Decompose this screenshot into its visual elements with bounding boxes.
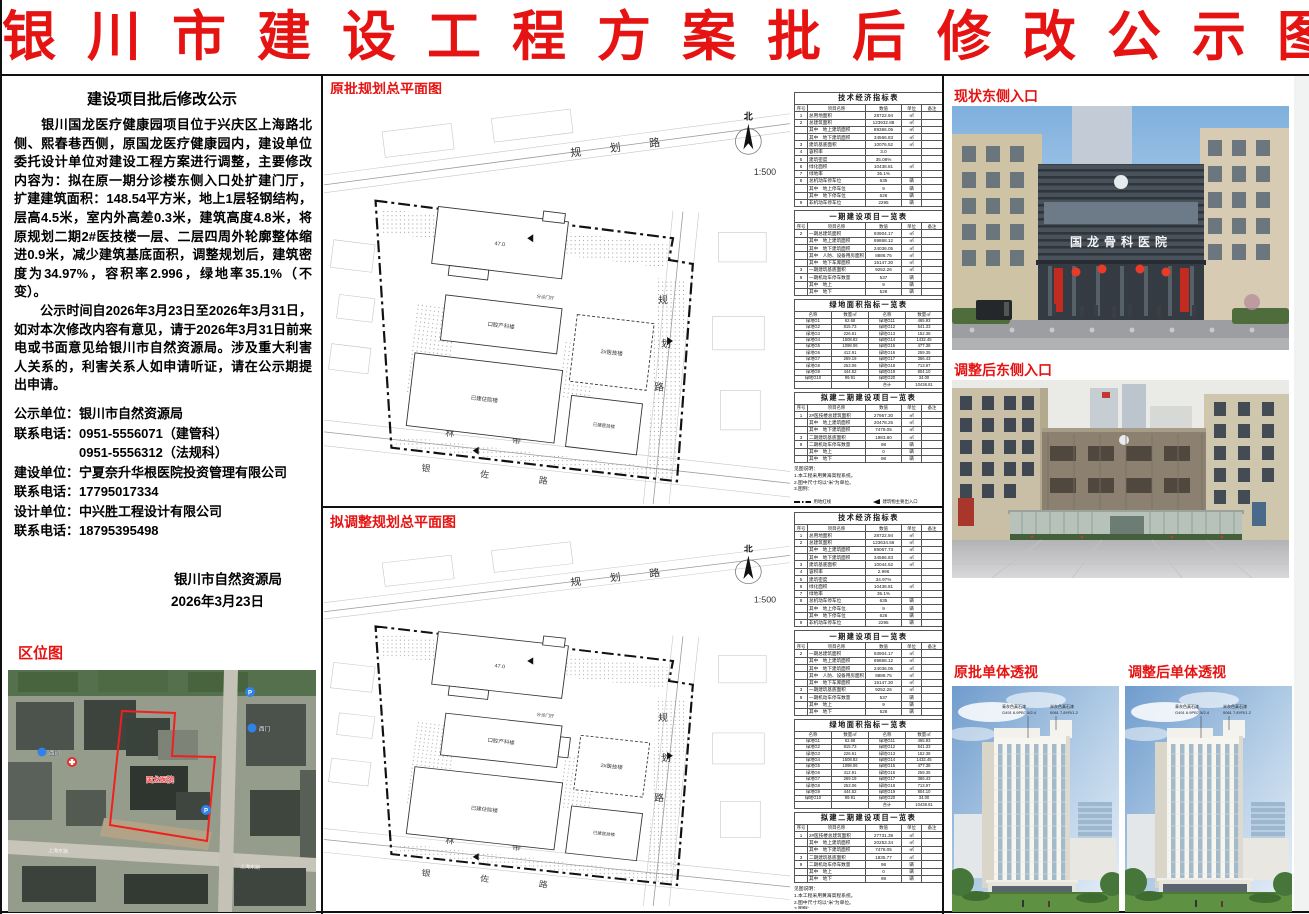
table-row: 其中 地下98辆	[795, 455, 943, 462]
table-row: 7绿地率35.1%	[795, 590, 943, 597]
table-row: 其中 地上停车位9辆	[795, 185, 943, 192]
svg-text:分诊门厅: 分诊门厅	[536, 711, 555, 720]
table-row: 其中 地下停车位626辆	[795, 192, 943, 199]
photo2-label: 调整后东侧入口	[954, 360, 1052, 380]
table-row: 其中 地下建筑面积34566.83㎡	[795, 134, 943, 141]
legend-label: 用地红线	[814, 499, 832, 504]
page-title: 银川市建设工程方案批后修改公示图	[2, 0, 1309, 74]
table-row: 其中 地下建筑面积7478.05㎡	[795, 846, 943, 853]
plan-notes: 见图说明：1.本工程采用黄海高程系统。2.图中尺寸均以“米”为单位。3.图例：	[794, 467, 942, 494]
adjusted-indicator-tables: 技术经济指标表 序号项目名称数值单位备注 1总用地面积28722.94㎡2总建筑…	[794, 512, 942, 909]
svg-text:1:500: 1:500	[754, 167, 776, 177]
tech-indicator-table: 技术经济指标表 序号项目名称数值单位备注 1总用地面积28722.94㎡2总建筑…	[794, 92, 942, 207]
note-line: 3.图例：	[794, 487, 942, 494]
table-row: 其中 地下528辆	[795, 708, 943, 715]
photo1-label: 现状东侧入口	[954, 86, 1038, 106]
paved-plaza	[952, 540, 1289, 578]
location-map-label: 区位图	[18, 642, 63, 663]
note-line: 1.本工程采用黄海高程系统。	[794, 894, 942, 901]
table-row: 其中 地上建筑面积69868.12㎡	[795, 657, 943, 664]
table-row: 其中 地上停车位9辆	[795, 605, 943, 612]
existing-entrance-photo: 国龙骨科医院	[952, 106, 1289, 350]
svg-text:1:500: 1:500	[754, 595, 777, 605]
legend-symbol-icon	[794, 501, 811, 503]
contact-list: 公示单位：银川市自然资源局联系电话：0951-5556071（建管科） 0951…	[14, 404, 316, 541]
table-row: 1总用地面积28722.94㎡	[795, 532, 943, 539]
location-satellite-map: P P 西门 西门 国龙医院 上海东路 上海东路	[8, 670, 316, 912]
table-row: 6绿化面积10438.81㎡	[795, 583, 943, 590]
table-row: 3一期建筑基底面积9252.26㎡	[795, 686, 943, 693]
contact-line: 联系电话：18795395498	[14, 521, 316, 541]
column-divider-right	[942, 74, 944, 914]
phase2-table: 拟建二期建设项目一览表 序号项目名称数值单位备注 12#医技楼总建筑面积2773…	[794, 812, 942, 883]
contact-line: 联系电话：17795017334	[14, 482, 316, 502]
legend-item: 建筑物主要出入口	[866, 498, 942, 504]
table-row: 其中 地下车库面积15147.30㎡	[795, 259, 943, 266]
table-row: 9一期机动车停车数量537辆	[795, 694, 943, 701]
contact-line: 设计单位：中兴胜工程设计有限公司	[14, 502, 316, 522]
road-label: 上海东路	[240, 863, 260, 871]
table-row: 8总机动车停车位635辆	[795, 177, 943, 184]
table-row: 其中 地上建筑面积89067.73㎡	[795, 546, 943, 553]
gate-pin-icon	[38, 748, 47, 757]
table-row: 12#医技楼总建筑面积27957.30㎡	[795, 412, 943, 419]
svg-text:青灰色真石漆: 青灰色真石漆	[1002, 703, 1026, 709]
table-row: 其中 地上建筑面积89366.05㎡	[795, 126, 943, 133]
table-row: 9二期机动车停车数量98辆	[795, 441, 943, 448]
note-line: 3.图例：	[794, 907, 942, 909]
svg-text:P: P	[248, 690, 252, 696]
adjusted-tower-render: 青灰色真石漆 G491 6.9PB7.5/2.4 米灰色真石漆 0061 7.8…	[1125, 686, 1292, 912]
table-row: 9一期机动车停车数量537辆	[795, 274, 943, 281]
svg-text:0061 7.8YR/1.2: 0061 7.8YR/1.2	[1050, 710, 1079, 715]
table-row: 2总建筑面积123634.56㎡	[795, 539, 943, 546]
green-area-table: 绿地面积指标一览表 名称数量㎡名称数量㎡ 绿地G162.68绿地G11465.9…	[794, 719, 942, 809]
svg-text:北: 北	[744, 543, 753, 554]
table-row: 5建筑密度34.97%	[795, 576, 943, 583]
buildings: 47.0 口腔产科楼 2#医技楼 已建住院楼 已建医技楼 分诊门厅	[406, 624, 664, 861]
table-row: 其中 地下建筑面积34566.83㎡	[795, 554, 943, 561]
north-arrow: 北 1:500	[735, 111, 776, 177]
adjusted-entrance-photo	[952, 380, 1289, 578]
contact-line: 0951-5556312（法规科）	[14, 443, 316, 463]
svg-text:米灰色真石漆: 米灰色真石漆	[1223, 703, 1247, 709]
legend-label: 建筑物主要出入口	[883, 499, 918, 504]
original-site-plan: 规 划 路 规 划 路 林 带 银 佐 路 北 1:500 47.0 口腔产科楼	[324, 94, 790, 504]
table-row: 12#医技楼总建筑面积27731.39㎡	[795, 832, 943, 839]
table-row: 7绿地率35.1%	[795, 170, 943, 177]
table-row: 其中 人防、设备用房面积8888.75㎡	[795, 672, 943, 679]
issuing-authority: 银川市自然资源局	[2, 568, 282, 588]
table-row: 4容积率3.0	[795, 148, 943, 155]
svg-text:G491 6.9PB7.5/2.4: G491 6.9PB7.5/2.4	[1002, 710, 1037, 715]
table-row: 其中 地上0辆	[795, 448, 943, 455]
site-name-label: 国龙医院	[146, 775, 174, 784]
notice-paragraph-2: 公示时间自2026年3月23日至2026年3月31日，如对本次修改内容有意见，请…	[14, 302, 312, 395]
title-divider	[2, 74, 1309, 76]
road-label-top: 规 划 路	[569, 133, 673, 159]
table-row: 其中 地下建筑面积24036.05㎡	[795, 245, 943, 252]
table-row: 6绿化面积10438.81㎡	[795, 163, 943, 170]
table-row: 其中 地下98辆	[795, 875, 943, 882]
render1-label: 原批单体透视	[954, 662, 1038, 682]
table-row: 3二期建筑基底面积1983.80㎡	[795, 434, 943, 441]
table-row: 其中 人防、设备用房面积8888.75㎡	[795, 252, 943, 259]
render2-label: 调整后单体透视	[1128, 662, 1226, 682]
table-row: 5建筑密度35.08%	[795, 156, 943, 163]
legend-symbol-icon	[866, 499, 880, 504]
table-row: 合计10438.81	[795, 802, 943, 808]
table-row: 8总机动车停车位635辆	[795, 597, 943, 604]
table-row: 4容积率2.996	[795, 568, 943, 575]
table-row: 其中 地上建筑面积20253.34㎡	[795, 839, 943, 846]
table-row: 3二期建筑基底面积1835.77㎡	[795, 854, 943, 861]
page-right-margin	[1294, 76, 1309, 911]
contact-line: 建设单位：宁夏奈升华根医院投资管理有限公司	[14, 463, 316, 483]
plan-legend: 用地红线 建筑物主要出入口 地下车库范围线 地下汽车库入口 机动车停车位 绿化用…	[794, 498, 942, 504]
table-row: 其中 地下528辆	[795, 288, 943, 295]
west-gate-label-2: 西门	[259, 725, 270, 733]
table-row: 3一期建筑基底面积9252.26㎡	[795, 266, 943, 273]
svg-text:分诊门厅: 分诊门厅	[536, 293, 555, 302]
note-line: 见图说明：	[794, 467, 942, 474]
green-area-table: 绿地面积指标一览表 名称数量㎡名称数量㎡ 绿地G162.68绿地G11465.9…	[794, 299, 942, 389]
west-gate-label: 西门	[49, 749, 60, 757]
notice-paragraph-1: 银川国龙医疗健康园项目位于兴庆区上海路北侧、熙春巷西侧，原国龙医疗健康园内，建设…	[14, 116, 312, 302]
contact-line: 联系电话：0951-5556071（建管科）	[14, 424, 316, 444]
svg-text:47.0: 47.0	[494, 241, 505, 248]
publish-date: 2026年3月23日	[2, 590, 264, 610]
table-header: 序号项目名称数值单位备注	[795, 105, 943, 112]
table-row: 其中 地上建筑面积20478.25㎡	[795, 419, 943, 426]
table-row: 其中 地上建筑面积69868.12㎡	[795, 237, 943, 244]
red-banner	[1180, 268, 1189, 312]
svg-text:米灰色真石漆: 米灰色真石漆	[1050, 703, 1074, 709]
notice-body: 银川国龙医疗健康园项目位于兴庆区上海路北侧、熙春巷西侧，原国龙医疗健康园内，建设…	[14, 116, 312, 395]
table-row: 9非机动车停车位2295辆	[795, 619, 943, 626]
svg-text:青灰色真石漆: 青灰色真石漆	[1175, 703, 1199, 709]
table-row: 9二期机动车停车数量98辆	[795, 861, 943, 868]
note-line: 见图说明：	[794, 887, 942, 894]
svg-text:G491 6.9PB7.5/2.4: G491 6.9PB7.5/2.4	[1175, 710, 1210, 715]
table-row: 其中 地上9辆	[795, 701, 943, 708]
expanded-lobby	[558, 737, 570, 758]
gate-pin-icon	[248, 724, 257, 733]
hospital-sign: 国龙骨科医院	[1070, 234, 1172, 249]
note-line: 1.本工程采用黄海高程系统。	[794, 474, 942, 481]
table-row: 1总用地面积28722.94㎡	[795, 112, 943, 119]
adjusted-site-plan: 规 划 路 规 划 路 林 带 银 佐 路 北 1:500 47.0 口腔产科楼	[324, 528, 790, 906]
table-row: 其中 地下车库面积15147.30㎡	[795, 679, 943, 686]
original-indicator-tables: 技术经济指标表 序号项目名称数值单位备注 1总用地面积28722.94㎡2总建筑…	[794, 92, 942, 504]
note-line: 2.图中尺寸均以“米”为单位。	[794, 901, 942, 908]
hospital-logo-icon	[1119, 435, 1129, 445]
table-row: 2总建筑面积123932.88㎡	[795, 119, 943, 126]
table-row: 2一期总建筑面积93904.17㎡	[795, 230, 943, 237]
svg-text:0061 7.8YR/1.2: 0061 7.8YR/1.2	[1223, 710, 1252, 715]
table-row: 其中 地上0辆	[795, 868, 943, 875]
phase2-table: 拟建二期建设项目一览表 序号项目名称数值单位备注 12#医技楼总建筑面积2795…	[794, 392, 942, 463]
plan-divider	[323, 506, 942, 508]
table-row: 3建筑基底面积10076.52㎡	[795, 141, 943, 148]
svg-text:P: P	[204, 808, 208, 814]
note-line: 2.图中尺寸均以“米”为单位。	[794, 481, 942, 488]
table-row: 2一期总建筑面积93904.17㎡	[795, 650, 943, 657]
table-row: 其中 地下建筑面积7479.05㎡	[795, 426, 943, 433]
phase1-table: 一期建设项目一览表 序号项目名称数值单位备注 2一期总建筑面积93904.17㎡…	[794, 210, 942, 296]
table-row: 3建筑基底面积10044.52㎡	[795, 561, 943, 568]
notice-heading: 建设项目批后修改公示	[12, 88, 312, 109]
table-row: 其中 地下停车位626辆	[795, 612, 943, 619]
legend-item: 用地红线	[794, 498, 864, 504]
tech-indicator-table: 技术经济指标表 序号项目名称数值单位备注 1总用地面积28722.94㎡2总建筑…	[794, 512, 942, 627]
hospital-logo-icon	[1114, 175, 1128, 189]
original-tower-render: 青灰色真石漆 G491 6.9PB7.5/2.4 米灰色真石漆 0061 7.8…	[952, 686, 1119, 912]
svg-text:47.0: 47.0	[494, 663, 505, 670]
road-label: 上海东路	[48, 847, 68, 855]
svg-text:北: 北	[744, 111, 753, 122]
table-row: 其中 地下建筑面积24036.05㎡	[795, 665, 943, 672]
buildings: 47.0 口腔产科楼 2#医技楼 已建住院楼 已建医技楼 分诊门厅	[406, 198, 666, 455]
contact-line: 公示单位：银川市自然资源局	[14, 404, 316, 424]
table-row: 合计10438.81	[795, 382, 943, 388]
public-notice-poster: 银川市建设工程方案批后修改公示图 建设项目批后修改公示 银川国龙医疗健康园项目位…	[0, 0, 1309, 914]
road-label-top: 规 划 路	[570, 565, 674, 589]
table-row: 9非机动车停车位2295辆	[795, 199, 943, 206]
table-row: 其中 地上9辆	[795, 281, 943, 288]
phase1-table: 一期建设项目一览表 序号项目名称数值单位备注 2一期总建筑面积93904.17㎡…	[794, 630, 942, 716]
plan-notes: 见图说明：1.本工程采用黄海高程系统。2.图中尺寸均以“米”为单位。3.图例：	[794, 887, 942, 909]
column-divider-left	[321, 74, 323, 914]
